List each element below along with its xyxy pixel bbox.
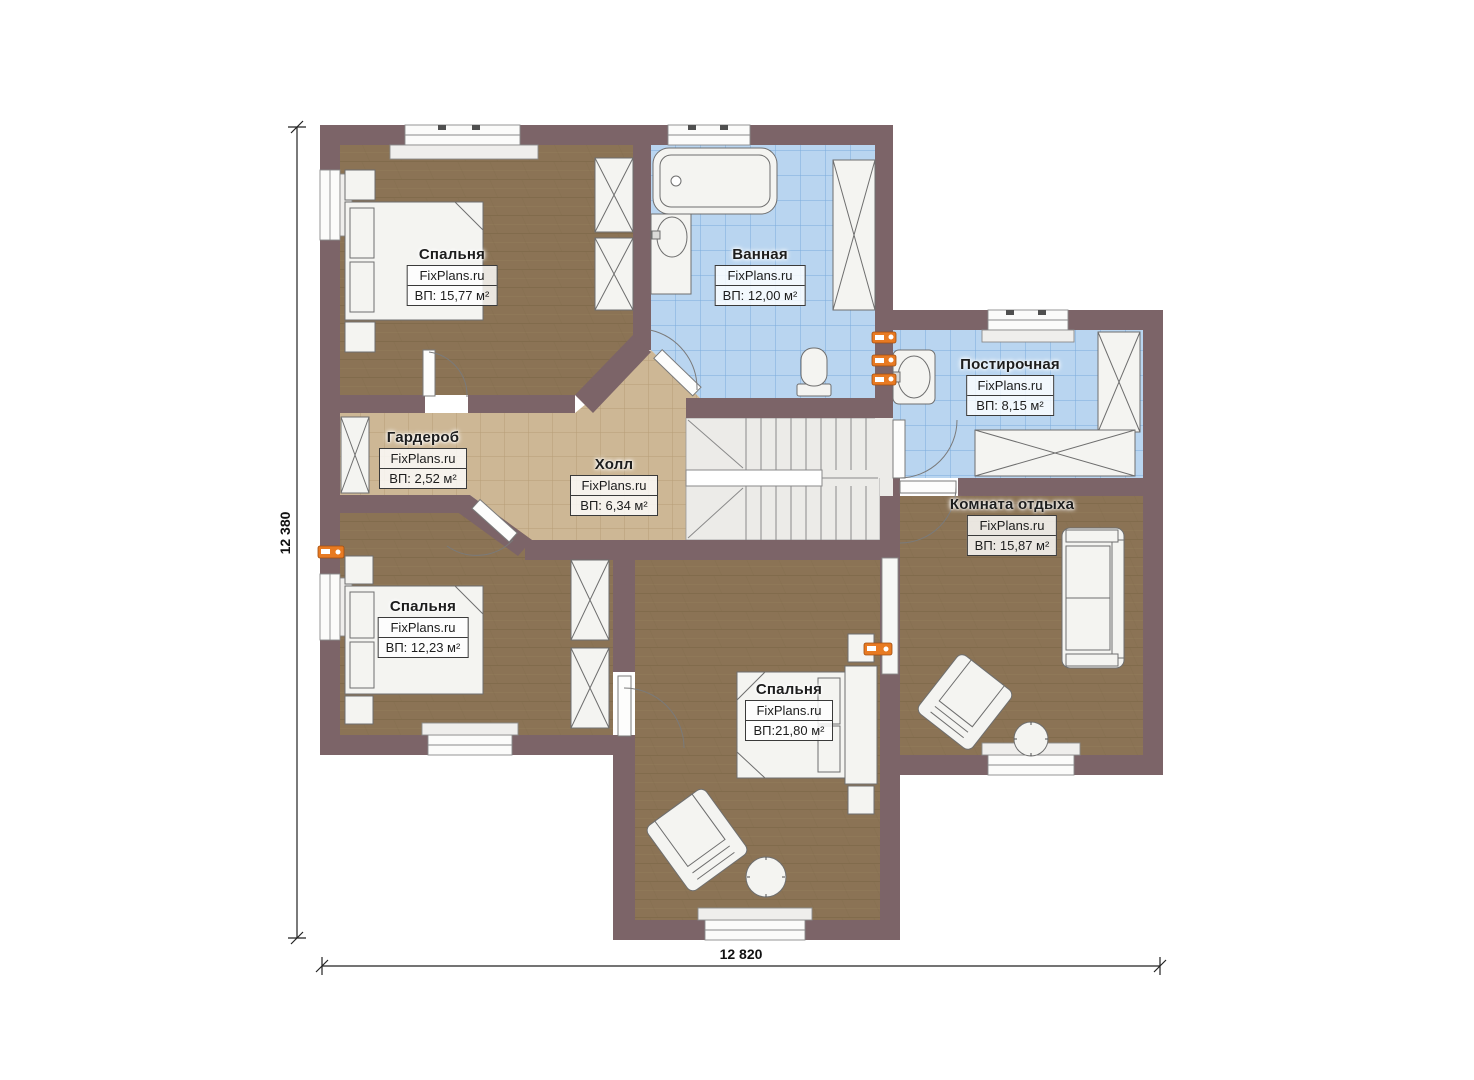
window-bedroom2-bottom <box>422 723 518 755</box>
laundry-cabinet-right <box>1098 332 1140 432</box>
room-brand: FixPlans.ru <box>408 266 497 285</box>
radiator <box>872 332 896 343</box>
room-area: ВП: 2,52 м² <box>380 468 466 488</box>
room-info-box: FixPlans.ru ВП: 15,77 м² <box>407 265 498 306</box>
room-name: Постирочная <box>960 356 1060 373</box>
room-area: ВП: 8,15 м² <box>967 395 1053 415</box>
nightstand <box>345 170 375 200</box>
radiator <box>872 374 896 385</box>
room-name: Комната отдыха <box>950 496 1074 513</box>
nightstand <box>848 786 874 814</box>
room-brand: FixPlans.ru <box>571 476 657 495</box>
room-brand: FixPlans.ru <box>967 376 1053 395</box>
wall-niche <box>882 558 898 674</box>
room-name: Холл <box>570 456 658 473</box>
lounge-table <box>1014 722 1048 756</box>
room-label-lounge: Комната отдыха FixPlans.ru ВП: 15,87 м² <box>950 496 1074 556</box>
bathroom-sink <box>651 214 691 294</box>
laundry-cabinet-bottom <box>975 430 1135 476</box>
room-area: ВП: 12,00 м² <box>716 285 805 305</box>
radiator <box>872 355 896 366</box>
bathtub <box>653 148 777 214</box>
wall-laundry-lounge-a <box>893 478 900 496</box>
room-label-wardrobe: Гардероб FixPlans.ru ВП: 2,52 м² <box>379 429 467 489</box>
bathroom-cabinet <box>833 160 875 310</box>
radiator <box>318 546 344 558</box>
room-area: ВП: 15,77 м² <box>408 285 497 305</box>
room-brand: FixPlans.ru <box>716 266 805 285</box>
room-label-hall: Холл FixPlans.ru ВП: 6,34 м² <box>570 456 658 516</box>
room-brand: FixPlans.ru <box>379 618 468 637</box>
room-label-bedroom-1: Спальня FixPlans.ru ВП: 15,77 м² <box>407 246 498 306</box>
room-info-box: FixPlans.ru ВП: 2,52 м² <box>379 448 467 489</box>
room-area: ВП: 6,34 м² <box>571 495 657 515</box>
wardrobe-cabinet <box>341 417 369 493</box>
room-info-box: FixPlans.ru ВП: 12,00 м² <box>715 265 806 306</box>
wall-above-stairs <box>686 398 875 418</box>
room-brand: FixPlans.ru <box>968 516 1057 535</box>
wall-rightblock-right <box>1143 310 1163 775</box>
toilet <box>797 348 831 396</box>
room-brand: FixPlans.ru <box>380 449 466 468</box>
dimension-height-label: 12 380 <box>277 512 293 555</box>
floor-plan-drawing <box>0 0 1474 1080</box>
window-bedroom3-bottom <box>698 908 812 940</box>
room-info-box: FixPlans.ru ВП: 6,34 м² <box>570 475 658 516</box>
room-label-bedroom-2: Спальня FixPlans.ru ВП: 12,23 м² <box>378 598 469 658</box>
nightstand <box>345 696 373 724</box>
room-label-bedroom-3: Спальня FixPlans.ru ВП:21,80 м² <box>745 681 833 741</box>
wall-bathroom-left <box>633 145 651 350</box>
window-laundry-top <box>982 310 1074 342</box>
wall-bedroom1-bottom-a <box>340 395 425 413</box>
room-info-box: FixPlans.ru ВП:21,80 м² <box>745 700 833 741</box>
bedroom3-table <box>746 857 786 897</box>
room-label-bathroom: Ванная FixPlans.ru ВП: 12,00 м² <box>715 246 806 306</box>
room-area: ВП: 12,23 м² <box>379 637 468 657</box>
room-info-box: FixPlans.ru ВП: 12,23 м² <box>378 617 469 658</box>
room-name: Спальня <box>378 598 469 615</box>
room-name: Спальня <box>407 246 498 263</box>
room-area: ВП:21,80 м² <box>746 720 832 740</box>
room-info-box: FixPlans.ru ВП: 15,87 м² <box>967 515 1058 556</box>
room-label-laundry: Постирочная FixPlans.ru ВП: 8,15 м² <box>960 356 1060 416</box>
window-bedroom1-top <box>390 125 538 159</box>
dimension-width-label: 12 820 <box>720 946 763 962</box>
wall-bedroom1-bottom-b <box>468 395 575 413</box>
room-name: Спальня <box>745 681 833 698</box>
room-name: Гардероб <box>379 429 467 446</box>
wall-wardrobe-bottom <box>340 495 470 513</box>
radiator <box>864 643 892 655</box>
wall-bedroom3-left-b <box>613 750 635 940</box>
window-bathroom-top <box>668 125 750 145</box>
floor-plan: Спальня FixPlans.ru ВП: 15,77 м² Ванная … <box>0 0 1474 1080</box>
room-area: ВП: 15,87 м² <box>968 535 1057 555</box>
nightstand <box>345 322 375 352</box>
nightstand <box>345 556 373 584</box>
wall-bedroom3-left-a <box>613 540 635 672</box>
corridor-floor <box>875 418 893 478</box>
room-brand: FixPlans.ru <box>746 701 832 720</box>
wall-top <box>320 125 875 145</box>
laundry-sink <box>893 350 935 404</box>
room-name: Ванная <box>715 246 806 263</box>
room-info-box: FixPlans.ru ВП: 8,15 м² <box>966 375 1054 416</box>
wall-laundry-lounge-b <box>958 478 1143 496</box>
wall-bedroom3-top <box>635 540 880 560</box>
